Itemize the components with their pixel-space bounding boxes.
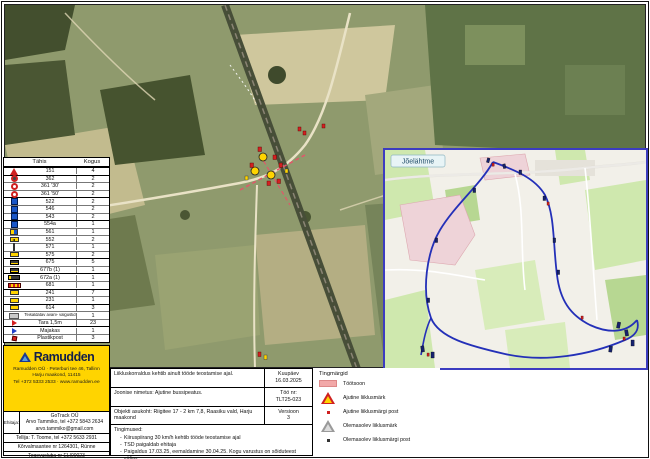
inset-map-graphic: Jõelähtme [385,150,646,368]
license-row: Tegevusluba nr ELI00023 [4,452,109,459]
sign-code: Plastikpost [24,335,76,341]
sign-code: 675 [24,259,76,265]
sign-qty: 1 [76,244,109,250]
sign-icon [4,260,24,265]
sign-code: 672a (1) [24,275,76,281]
sign-table-row: 5752 [4,251,109,259]
inset-overview-map: Jõelähtme [383,148,648,370]
sign-code: 241 [24,290,76,296]
date-label: Kuupäev [266,371,311,378]
sign-table-row: 5522 [4,235,109,243]
sign-table-row: 5222 [4,197,109,205]
sign-qty: 1 [76,229,109,235]
li-tri-red-icon [319,392,337,404]
builder-label: Ehitaja: [4,412,20,433]
sign-qty: 1 [76,221,109,227]
version-label: Versioon [266,409,311,416]
sign-table-row: Plastikpost3 [4,334,109,342]
version-value: 3 [266,415,311,422]
sign-table-header: Tähis Kogus [4,158,109,167]
legend-item-label: Ajutine liiklusmärk [343,395,385,401]
ramudden-logo: Ramudden [19,350,95,364]
sign-qty: 1 [76,267,109,273]
sign-qty: 2 [76,191,109,197]
sign-icon [4,298,24,303]
sign-table-row: 6755 [4,258,109,266]
sign-code: 552 [24,237,76,243]
sign-icon [4,237,24,242]
sign-code: 231 [24,297,76,303]
ramudden-address: Ramudden OÜ · Peterburi tee 46, Tallinn … [13,367,100,386]
sign-table-row: 672a (1)1 [4,273,109,281]
ramudden-triangle-icon [19,352,31,362]
sign-icon [4,336,24,341]
sign-icon [4,168,24,175]
ta-plan-page: Tähis Kogus 15143622361 '30'2361 '50'252… [0,0,650,459]
sign-icon [4,198,24,205]
sign-qty: 2 [76,214,109,220]
sign-code: 546 [24,206,76,212]
sign-qty: 1 [76,297,109,303]
sign-code: 575 [24,252,76,258]
sign-icon [4,175,24,182]
sign-table-row: 6811 [4,281,109,289]
sign-table-row: 2417 [4,289,109,297]
legend-item-label: Töötsoon [343,381,365,387]
sign-code: 151 [24,168,76,174]
object-row: Kõrvalmaantee nr 1264301, Rünne [4,443,109,452]
sign-qty: 1 [76,328,109,334]
sign-icon [4,328,24,334]
sign-icon [4,320,24,326]
sign-table-row: Majakas1 [4,326,109,334]
sign-table-row: 5711 [4,243,109,251]
legend-title: Tingmärgid [319,371,434,377]
legend-item: Olemasolev liiklusmärk [319,420,434,432]
ramudden-brand-box: Ramudden Ramudden OÜ · Peterburi tee 46,… [4,346,109,412]
date-value: 16.03.2025 [266,378,311,385]
sign-icon [4,221,24,228]
sign-table-row: 2311 [4,296,109,304]
sign-qty: 7 [76,290,109,296]
sign-qty: 4 [76,168,109,174]
sign-icon [4,283,24,288]
sign-code: 543 [24,214,76,220]
sign-qty: 3 [76,335,109,341]
legend-item-label: Ajutine liiklusmärgi post [343,409,398,415]
sign-table-row: 677b (1)1 [4,266,109,274]
sign-code: 681 [24,282,76,288]
sign-table-row: Teisaldatav avarii- valgustid1 [4,311,109,319]
sign-qty: 2 [76,252,109,258]
sign-code: 561 [24,229,76,235]
legend-item-label: Olemasolev liiklusmärk [343,423,397,429]
li-zone-icon [319,380,337,387]
sign-table-row: 5611 [4,228,109,236]
sign-qty: 2 [76,183,109,189]
li-tri-grey-icon [319,420,337,432]
sign-table-rows: 15143622361 '30'2361 '50'252225462543255… [4,167,109,342]
legend-item-label: Olemasolev liiklusmärgi post [343,437,410,443]
builder-email: arvo.tammiko@gmail.com [22,426,107,432]
sign-icon [4,206,24,213]
sign-qty: 2 [76,176,109,182]
sign-code: Teisaldatav avarii- valgustid [24,313,76,317]
ramudden-address-line: Tel +372 5333 2533 · www.ramudden.ee [13,380,100,386]
sign-code: 571 [24,244,76,250]
map-legend-block: Tingmärgid TöötsoonAjutine liiklusmärkAj… [313,368,440,456]
footer-contact-block: Ramudden Ramudden OÜ · Peterburi tee 46,… [3,345,110,456]
sign-code: Majakas [24,328,76,334]
li-dot-dark-icon [319,439,337,442]
legend-item: Ajutine liiklusmärgi post [319,409,434,415]
job-number-value: TLT25-023 [266,397,311,404]
sign-icon [4,305,24,310]
sign-table-row: 5462 [4,205,109,213]
sign-table-row: 6143 [4,304,109,312]
condition-item: TSD paigaldab ehitaja [120,442,309,449]
sign-icon [4,268,24,273]
inset-place-label: Jõelähtme [391,155,445,167]
legend-item: Ajutine liiklusmärk [319,392,434,404]
inset-place-label-text: Jõelähtme [402,159,434,166]
sign-table-header-code: Tähis [4,159,75,165]
condition-item: Paigaldus 17.03.25, eemaldamine 30.04.25… [120,449,309,459]
notice-text: Liikluskorraldus kehtib ainult tööde teo… [111,369,264,387]
sign-table-row: 1514 [4,167,109,175]
legend-items: TöötsoonAjutine liiklusmärkAjutine liikl… [319,380,434,443]
footer-info-block: Liikluskorraldus kehtib ainult tööde teo… [110,368,313,456]
drawing-title: Joonise nimetus: Ajutine bussipeatus. [111,388,264,406]
sign-table-row: 5432 [4,213,109,221]
sign-code: 614 [24,305,76,311]
sign-icon [4,313,24,319]
sign-qty: 23 [76,320,109,326]
legend-item: Olemasolev liiklusmärgi post [319,437,434,443]
builder-phone: Arvo Tammiko, tel +372 5843 2634 [22,419,107,425]
sign-qty: 2 [76,237,109,243]
li-dot-red-icon [319,411,337,414]
conditions-list: Kiiruspiirang 30 km/h kehtib tööde teost… [114,435,309,459]
sign-table-row: 3622 [4,175,109,183]
sign-table-row: 554a1 [4,220,109,228]
sign-icon [4,183,24,190]
sign-code: 361 '50' [24,191,76,197]
bottom-right-margin [440,371,647,456]
sign-qty: 1 [76,275,109,281]
sign-qty: 1 [76,313,109,319]
sign-table-row: Tara 1,5m23 [4,319,109,327]
sign-code: Tara 1,5m [24,320,76,326]
sign-icon [4,252,24,257]
contact-rows: Ehitaja: GoTrack OÜ Arvo Tammiko, tel +3… [4,412,109,459]
sign-icon [4,229,24,235]
job-number-label: Töö nr: [266,390,311,397]
sign-icon [4,213,24,220]
sign-quantity-table: Tähis Kogus 15143622361 '30'2361 '50'252… [3,157,110,343]
sign-icon [4,275,24,280]
sign-code: 677b (1) [24,267,76,273]
sign-icon [4,290,24,295]
sign-icon [4,191,24,198]
condition-item: Kiiruspiirang 30 km/h kehtib tööde teost… [120,435,309,442]
sign-qty: 5 [76,259,109,265]
ramudden-wordmark: Ramudden [34,350,95,364]
sign-code: 554a [24,221,76,227]
sign-qty: 2 [76,206,109,212]
client-row: Tellija: T. Toome, tel +372 5633 2931 [4,434,109,443]
conditions-label: Tingimused: [114,427,309,434]
sign-icon [4,243,24,251]
sign-qty: 3 [76,305,109,311]
sign-table-header-qty: Kogus [75,159,109,165]
sign-code: 522 [24,199,76,205]
object-location: Objekti asukoht: Riigitee 17 - 2 km 7,8,… [111,407,264,425]
sign-code: 362 [24,176,76,182]
sign-table-row: 361 '50'2 [4,190,109,198]
sign-qty: 2 [76,199,109,205]
sign-qty: 1 [76,282,109,288]
sign-table-row: 361 '30'2 [4,182,109,190]
legend-item: Töötsoon [319,380,434,387]
sign-code: 361 '30' [24,183,76,189]
